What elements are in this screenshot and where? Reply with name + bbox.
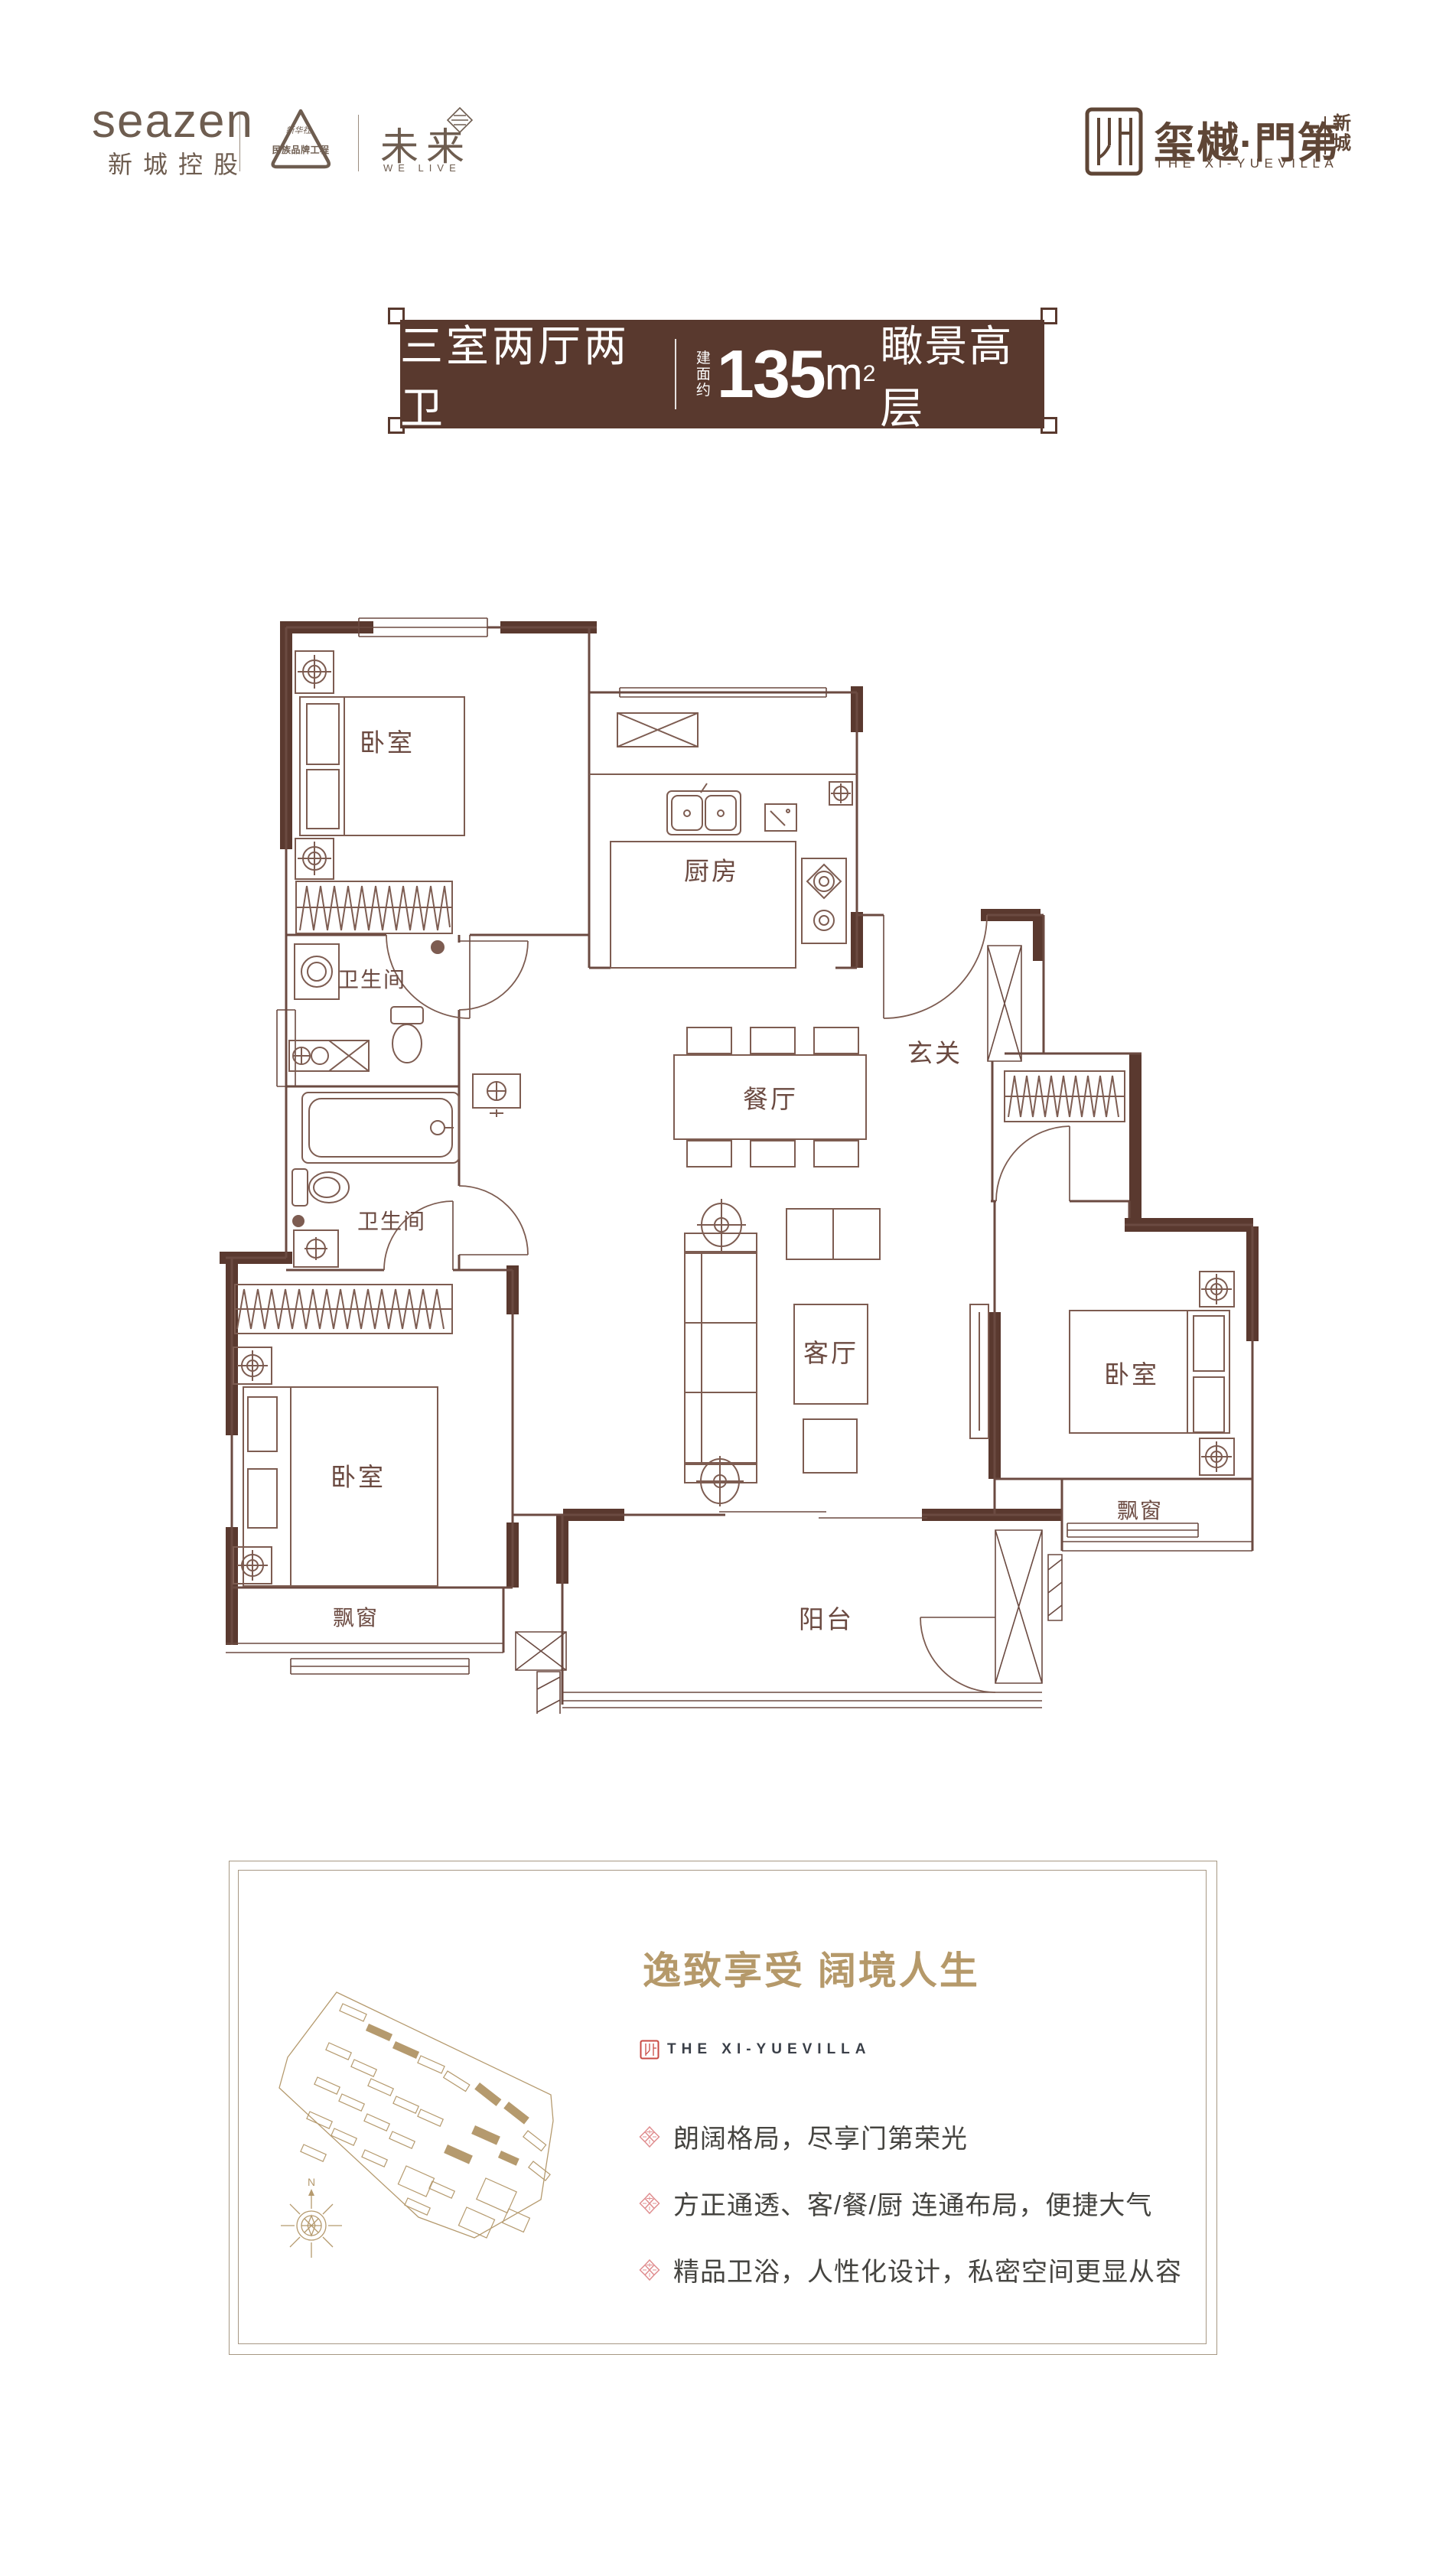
shaft-boxes [516, 946, 1042, 1683]
seazen-wordmark: seazen [92, 98, 254, 145]
emblem-label: 民族品牌工程 [272, 144, 329, 155]
area-prefix-char: 约 [696, 383, 711, 399]
header-divider [358, 115, 359, 171]
foyer-label: 玄关 [907, 1039, 962, 1067]
national-brand-emblem: 新华社 民族品牌工程 [268, 106, 334, 177]
area-power: 2 [863, 361, 876, 387]
balcony-label: 阳台 [799, 1605, 854, 1633]
project-subname-char: 城 [1333, 134, 1351, 154]
bedroom-r-label: 卧室 [1104, 1360, 1159, 1389]
banner-tagline: 瞰景高层 [880, 312, 1044, 436]
feature-text: 朗阔格局，尽享门第荣光 [673, 2118, 968, 2155]
bath-lower-label: 卫生间 [357, 1210, 426, 1233]
project-name-en: THE XI-YUEVILLA [1155, 156, 1338, 171]
diamond-ornament-icon [447, 107, 473, 133]
living-label: 客厅 [803, 1339, 858, 1367]
bedroom-bl-furniture [233, 1285, 452, 1586]
foyer-closet [1005, 1071, 1125, 1122]
kitchen-furniture [589, 713, 857, 968]
header-divider [239, 115, 240, 171]
future-en-label: WE LIVE [383, 162, 461, 174]
feature-bullet: 方正通透、客/餐/厨 连通布局，便捷大气 [638, 2184, 1152, 2222]
compass-rose: N [281, 2176, 342, 2258]
seazen-cn-label: 新城控股 [108, 145, 249, 181]
bay-window-bl-label: 飘窗 [333, 1606, 379, 1630]
area-number: 135 [717, 340, 825, 408]
bay-window-r-label: 飘窗 [1117, 1499, 1163, 1522]
kitchen-label: 厨房 [684, 857, 739, 885]
poster-page: seazen 新城控股 新华社 民族品牌工程 未来 WE LIVE 玺樾·門第 … [0, 0, 1446, 2576]
pink-diamond-icon [638, 2192, 661, 2215]
logo-divider [1324, 116, 1326, 155]
pink-diamond-icon [638, 2258, 661, 2281]
floor-plan: 卧室 厨房 卫生间 卫生间 餐厅 玄关 客厅 卧室 卧室 飘窗 飘窗 阳台 [191, 581, 1301, 1714]
pink-diamond-icon [638, 2125, 661, 2148]
bedroom-bl-label: 卧室 [331, 1463, 386, 1491]
bath-upper-label: 卫生间 [337, 968, 406, 992]
area-prefix-char: 面 [696, 366, 711, 383]
windows [226, 618, 1252, 1714]
dining-label: 餐厅 [743, 1085, 798, 1113]
bedroom-tl-furniture [295, 651, 464, 933]
type-banner: 三室两厅两卫 建 面 约 135 m 2 瞰景高层 [400, 320, 1044, 428]
compass-n-label: N [308, 2176, 315, 2188]
feature-text: 精品卫浴，人性化设计，私密空间更显从容 [673, 2251, 1182, 2288]
room-labels: 卧室 厨房 卫生间 卫生间 餐厅 玄关 客厅 卧室 卧室 飘窗 飘窗 阳台 [331, 728, 1163, 1633]
walls [226, 627, 1253, 1705]
feature-text: 方正通透、客/餐/厨 连通布局，便捷大气 [673, 2184, 1152, 2222]
area-prefix-char: 建 [696, 350, 711, 366]
project-seal-icon [1085, 107, 1143, 176]
info-brand-en: THE XI-YUEVILLA [667, 2041, 871, 2058]
info-headline: 逸致享受 阔境人生 [643, 1940, 980, 1995]
bedroom-tl-label: 卧室 [360, 728, 415, 757]
feature-bullet: 精品卫浴，人性化设计，私密空间更显从容 [638, 2251, 1182, 2288]
area-prefix: 建 面 约 [696, 350, 711, 399]
info-brand-row: THE XI-YUEVILLA [640, 2040, 871, 2060]
project-subname-char: 新 [1333, 114, 1351, 134]
site-plan: N [256, 1909, 593, 2330]
project-subname: 新 城 [1333, 114, 1351, 154]
emblem-script-label: 新华社 [286, 125, 312, 135]
doors [384, 915, 1070, 1692]
site-buildings [301, 2004, 550, 2238]
layout-label: 三室两厅两卫 [400, 312, 655, 436]
triangle-icon [273, 111, 329, 167]
bath-lower-fixtures [292, 1074, 520, 1267]
banner-divider [675, 339, 676, 409]
area-unit: m [825, 351, 863, 397]
red-seal-icon [640, 2040, 659, 2060]
feature-bullet: 朗阔格局，尽享门第荣光 [638, 2118, 968, 2155]
